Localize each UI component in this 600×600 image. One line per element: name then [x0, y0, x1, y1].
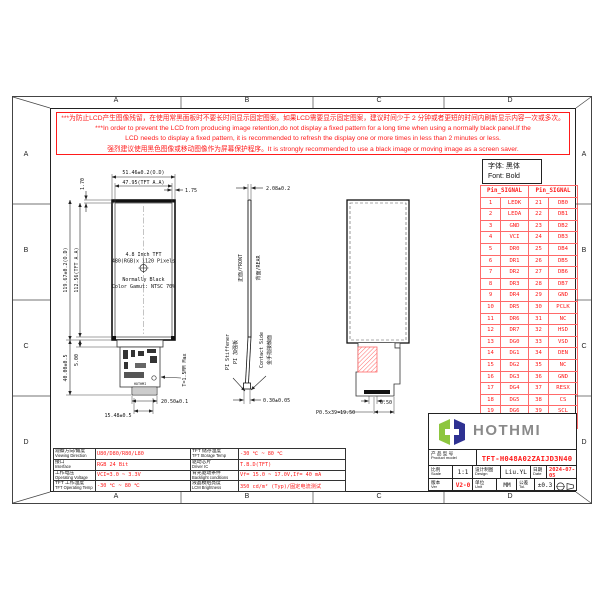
spec-table-left: 观察方向/角度Viewing Direction U80/D80/R80/L80…	[53, 448, 191, 492]
spec-row: 液晶模组亮度LCM Brightness 350 cd/m² (Typ)/固定电…	[191, 481, 346, 492]
ver-unit-tol-row: 版本Ver V2-0 单位Unit MM 公差Tol. ±0.3	[429, 479, 576, 491]
label-area-hatch	[358, 347, 377, 372]
title-block: HOTHMI 产 品 型 号 Product model TFT-H048A02…	[428, 413, 577, 491]
dim-edge-offset: 0.50	[380, 400, 392, 406]
spec-value: RGB 24 Bit	[96, 459, 191, 470]
unit-value: MM	[497, 479, 517, 491]
tol-label-en: Tol.	[519, 485, 533, 490]
spec-label-en: Viewing Direction	[55, 454, 94, 459]
front-side-label: 正面/FRONT	[238, 254, 244, 282]
unit-label-en: Unit	[475, 485, 495, 490]
scale-label-en: Scale	[431, 472, 451, 477]
dim-fpc-offset: 5.00	[74, 354, 80, 366]
dim-height-aa: 112.56(TFT A.A)	[74, 247, 80, 292]
ver-label-en: Ver	[431, 485, 451, 490]
rear-view: 0.50 P0.5x39=19.50	[316, 200, 409, 416]
spec-value: -30 ℃ ~ 80 ℃	[239, 449, 346, 460]
dim-height-od: 119.67±0.2(O.D)	[63, 247, 69, 292]
technical-drawing: 4.8 Inch TFT 480(RGB)x 1120 Pixels Norma…	[0, 0, 600, 600]
rear-side-label: 背面/REAR	[255, 254, 262, 280]
dim-width-aa: 47.95(TFT A.A)	[122, 180, 164, 186]
design-label-en: Design	[475, 472, 499, 477]
dim-offset-top: 1.70	[80, 178, 86, 190]
panel-mode-label: Normally Black	[122, 277, 164, 283]
product-model-value: TFT-H048A02ZAIJD3N40	[477, 450, 576, 466]
spec-row: TFT 储存温度TFT Storage Temp -30 ℃ ~ 80 ℃	[191, 449, 346, 460]
spec-row: 背光驱动条件Backlight conditions Vf= 15.0 ~ 17…	[191, 470, 346, 481]
spec-label-en: Interface	[55, 465, 94, 470]
dim-offset-right: 1.75	[185, 188, 197, 194]
dim-pin-pitch: P0.5x39=19.50	[316, 410, 355, 416]
spec-row: 观察方向/角度Viewing Direction U80/D80/R80/L80	[54, 449, 191, 460]
projection-symbol-icon	[555, 481, 575, 491]
spec-value: -30 ℃ ~ 80 ℃	[96, 481, 191, 492]
logo-wordmark: HOTHMI	[473, 422, 541, 439]
product-row: 产 品 型 号 Product model TFT-H048A02ZAIJD3N…	[429, 450, 576, 466]
contact-side-label-zh: 金手指接触面	[266, 335, 273, 365]
spec-value: T.B.D(TFT)	[239, 459, 346, 470]
date-label-en: Date	[533, 472, 545, 477]
date-value: 2024-07-05	[547, 466, 576, 479]
spec-label-en: LCM Brightness	[192, 486, 237, 491]
fpc-print-label: HOTHMI	[134, 382, 146, 386]
datasheet-page: { "colors": { "red": "#ff1a1a", "logo_gr…	[0, 0, 600, 600]
panel-size-label: 4.8 Inch TFT	[125, 252, 161, 258]
spec-value: VCI=3.0 ~ 3.3V	[96, 470, 191, 481]
contact-side-label-en: Contact Side	[259, 332, 265, 368]
thickness-note: T=1.5MM Max	[182, 353, 188, 386]
logo-block: HOTHMI	[429, 414, 576, 450]
spec-label-en: TFT Storage Temp	[192, 454, 237, 459]
spec-label-en: Backlight conditions	[192, 476, 237, 481]
dim-thickness: 2.08±0.2	[266, 186, 290, 192]
design-value: Liu.YL	[501, 466, 531, 479]
spec-value: Vf= 15.0 ~ 17.0V,If= 40 mA	[239, 470, 346, 481]
dim-fingers-width: 15.48±0.5	[104, 413, 131, 419]
pi-stiffener-label-en: PI Stiffener	[225, 334, 231, 370]
scale-value: 1:1	[453, 466, 473, 479]
scale-design-date-row: 比例Scale 1:1 设计制图Design Liu.YL 日期Date 202…	[429, 466, 576, 479]
dim-width-od: 51.46±0.2(O.D)	[122, 170, 164, 176]
spec-row: 接口Interface RGB 24 Bit	[54, 459, 191, 470]
front-view: 4.8 Inch TFT 480(RGB)x 1120 Pixels Norma…	[63, 170, 197, 419]
dim-tip-thickness: 0.30±0.05	[263, 398, 290, 404]
spec-value: 350 cd/m² (Typ)/固定电流测试	[239, 481, 346, 492]
spec-label-en: TFT Operating Temp	[55, 486, 94, 491]
spec-row: 驱动芯片Driver IC T.B.D(TFT)	[191, 459, 346, 470]
hothmi-logo-icon	[437, 418, 467, 446]
product-label-en: Product model	[431, 456, 475, 461]
spec-label-en: Driver IC	[192, 465, 237, 470]
spec-value: U80/D80/R80/L80	[96, 449, 191, 460]
ver-value: V2-0	[453, 479, 473, 491]
tol-value: ±0.3	[535, 479, 555, 491]
pi-stiffener-label-zh: PI 加强板	[232, 340, 239, 364]
connector-bar	[364, 390, 390, 394]
dim-connector-width: 20.50±0.1	[161, 399, 188, 405]
spec-label-en: Operating Voltage	[55, 476, 94, 481]
side-view: 2.08±0.2 正面/FRONT 背面/REAR PI Stiffener P…	[225, 184, 290, 404]
spec-table-right: TFT 储存温度TFT Storage Temp -30 ℃ ~ 80 ℃ 驱动…	[190, 448, 346, 492]
panel-gamut-label: Color Gamut: NTSC 70%	[112, 284, 175, 290]
dim-fpc-length: 40.00±0.5	[63, 354, 69, 381]
spec-row: TFT 工作温度TFT Operating Temp -30 ℃ ~ 80 ℃	[54, 481, 191, 492]
panel-resolution-label: 480(RGB)x 1120 Pixels	[112, 259, 175, 265]
spec-row: 工作电压Operating Voltage VCI=3.0 ~ 3.3V	[54, 470, 191, 481]
fpc-tail: HOTHMI	[117, 340, 163, 395]
